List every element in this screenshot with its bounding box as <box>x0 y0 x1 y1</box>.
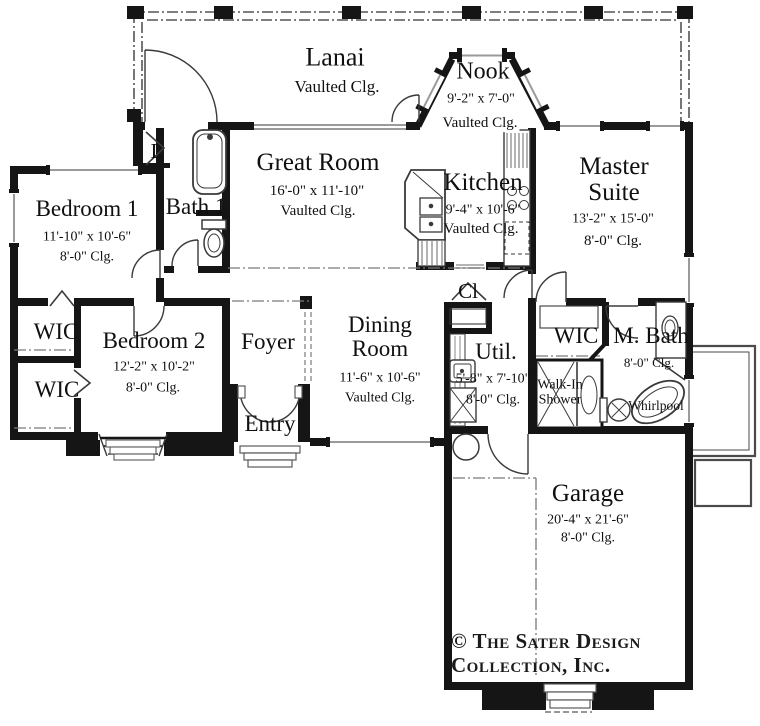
label-bedroom-1-dims: 11'-10" x 10'-6" <box>43 231 131 246</box>
copyright-line-2: Collection, Inc. <box>451 653 641 677</box>
label-kitchen-clg: Vaulted Clg. <box>444 222 519 238</box>
left-bay-steps <box>106 440 160 460</box>
label-closet: Cl <box>458 280 478 302</box>
foyer-dining-divider <box>305 312 311 382</box>
kitchen-counter-range <box>504 130 530 266</box>
label-bedroom-2-clg: 8'-0" Clg. <box>126 382 180 397</box>
label-wic-2: WIC <box>35 378 80 402</box>
label-master-suite: Master Suite <box>562 154 666 207</box>
label-bedroom-1-clg: 8'-0" Clg. <box>60 251 114 266</box>
label-nook-dims: 9'-2" x 7'-0" <box>447 93 515 108</box>
copyright-line-1: © The Sater Design <box>451 629 641 653</box>
label-kitchen: Kitchen <box>443 170 522 196</box>
label-kitchen-dims: 9'-4" x 10'-6" <box>446 204 521 219</box>
label-whirlpool: Whirlpool <box>628 399 684 413</box>
label-utility-dims: 5'-8" x 7'-10" <box>456 373 531 388</box>
label-bedroom-1: Bedroom 1 <box>36 197 139 221</box>
label-dining-room-clg: Vaulted Clg. <box>345 392 415 407</box>
lanai-posts <box>127 6 693 122</box>
label-garage-dims: 20'-4" x 21'-6" <box>547 514 629 529</box>
floor-plan: Lanai Vaulted Clg. Nook 9'-2" x 7'-0" Va… <box>0 0 760 726</box>
label-entry: Entry <box>244 412 295 436</box>
bath1-tub <box>193 130 226 194</box>
label-walk-in-shower: Walk-In Shower <box>528 378 592 407</box>
label-master-suite-clg: 8'-0" Clg. <box>584 234 642 250</box>
label-m-bath: M. Bath <box>613 324 688 348</box>
label-laundry: L <box>151 140 164 162</box>
label-foyer: Foyer <box>241 330 295 354</box>
label-dining-room-dims: 11'-6" x 10'-6" <box>339 372 420 387</box>
right-bump-outs <box>693 346 755 506</box>
label-wic-1: WIC <box>34 320 79 344</box>
cl-shelf <box>450 309 486 324</box>
mbath-toilet <box>600 398 630 422</box>
label-great-room-dims: 16'-0" x 11'-10" <box>270 184 365 200</box>
label-garage-clg: 8'-0" Clg. <box>561 532 615 547</box>
label-m-bath-clg: 8'-0" Clg. <box>624 356 674 370</box>
label-dining-room: Dining Room <box>332 313 428 361</box>
kitchen-peninsula-sink <box>405 170 445 240</box>
label-great-room: Great Room <box>257 150 380 176</box>
label-nook-clg: Vaulted Clg. <box>441 116 520 132</box>
label-bedroom-2: Bedroom 2 <box>103 329 206 353</box>
label-utility-clg: 8'-0" Clg. <box>466 394 520 409</box>
copyright-notice: © The Sater Design Collection, Inc. <box>451 629 641 677</box>
label-garage: Garage <box>552 481 624 507</box>
water-heater <box>453 434 479 460</box>
label-nook: Nook <box>456 59 509 84</box>
label-lanai: Lanai <box>305 43 364 70</box>
label-master-suite-dims: 13'-2" x 15'-0" <box>572 213 654 228</box>
bath1-toilet <box>202 220 226 257</box>
label-wic-master: WIC <box>554 324 599 348</box>
label-bath-1: Bath 1 <box>166 195 227 219</box>
label-bedroom-2-dims: 12'-2" x 10'-2" <box>113 361 195 376</box>
label-utility: Util. <box>475 340 517 364</box>
kitchen-cabinet-hatch <box>418 240 445 266</box>
label-great-room-clg: Vaulted Clg. <box>281 204 356 220</box>
label-lanai-clg: Vaulted Clg. <box>295 78 380 96</box>
lanai-screen-enclosure <box>129 12 693 122</box>
garage-stoop-steps <box>544 684 596 712</box>
